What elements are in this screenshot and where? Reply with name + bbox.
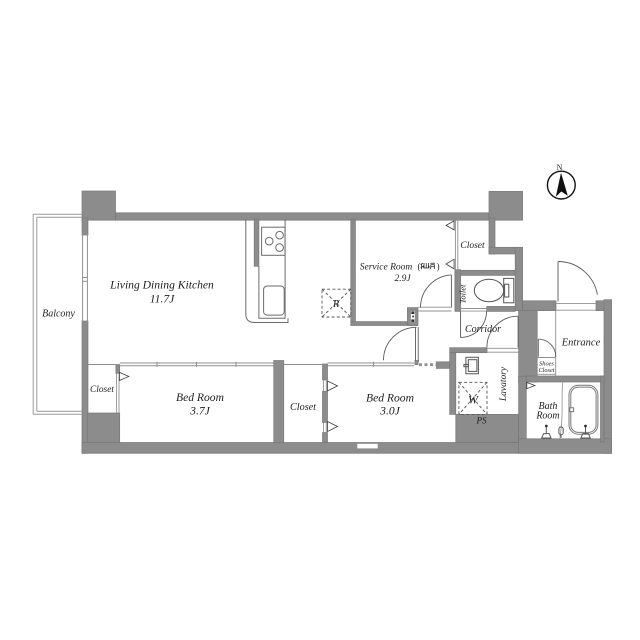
svg-text:W: W xyxy=(468,393,479,407)
svg-text:(: ( xyxy=(418,262,421,272)
svg-text:3.7J: 3.7J xyxy=(189,405,210,418)
svg-text:Closet: Closet xyxy=(538,367,554,374)
svg-text:Bed Room: Bed Room xyxy=(366,392,414,405)
svg-text:2.9J: 2.9J xyxy=(394,274,411,284)
svg-text:PS: PS xyxy=(476,416,487,426)
svg-text:Closet: Closet xyxy=(90,385,114,395)
svg-text:Balcony: Balcony xyxy=(42,309,75,320)
svg-text:): ) xyxy=(437,262,440,272)
svg-text:Room: Room xyxy=(535,411,559,422)
svg-text:R: R xyxy=(332,299,339,310)
svg-text:3.0J: 3.0J xyxy=(379,405,400,418)
svg-text:Bed Room: Bed Room xyxy=(176,391,224,404)
svg-text:Closet: Closet xyxy=(460,241,485,251)
svg-text:N: N xyxy=(557,163,563,172)
svg-text:Entrance: Entrance xyxy=(561,338,601,349)
svg-text:Lavatory: Lavatory xyxy=(499,366,509,402)
svg-text:Corridor: Corridor xyxy=(465,324,501,335)
svg-text:Living Dining Kitchen: Living Dining Kitchen xyxy=(109,279,214,292)
svg-text:Closet: Closet xyxy=(290,402,317,413)
svg-text:Service Room: Service Room xyxy=(360,262,413,272)
svg-text:11.7J: 11.7J xyxy=(150,293,175,306)
svg-text:Toilet: Toilet xyxy=(458,284,468,304)
